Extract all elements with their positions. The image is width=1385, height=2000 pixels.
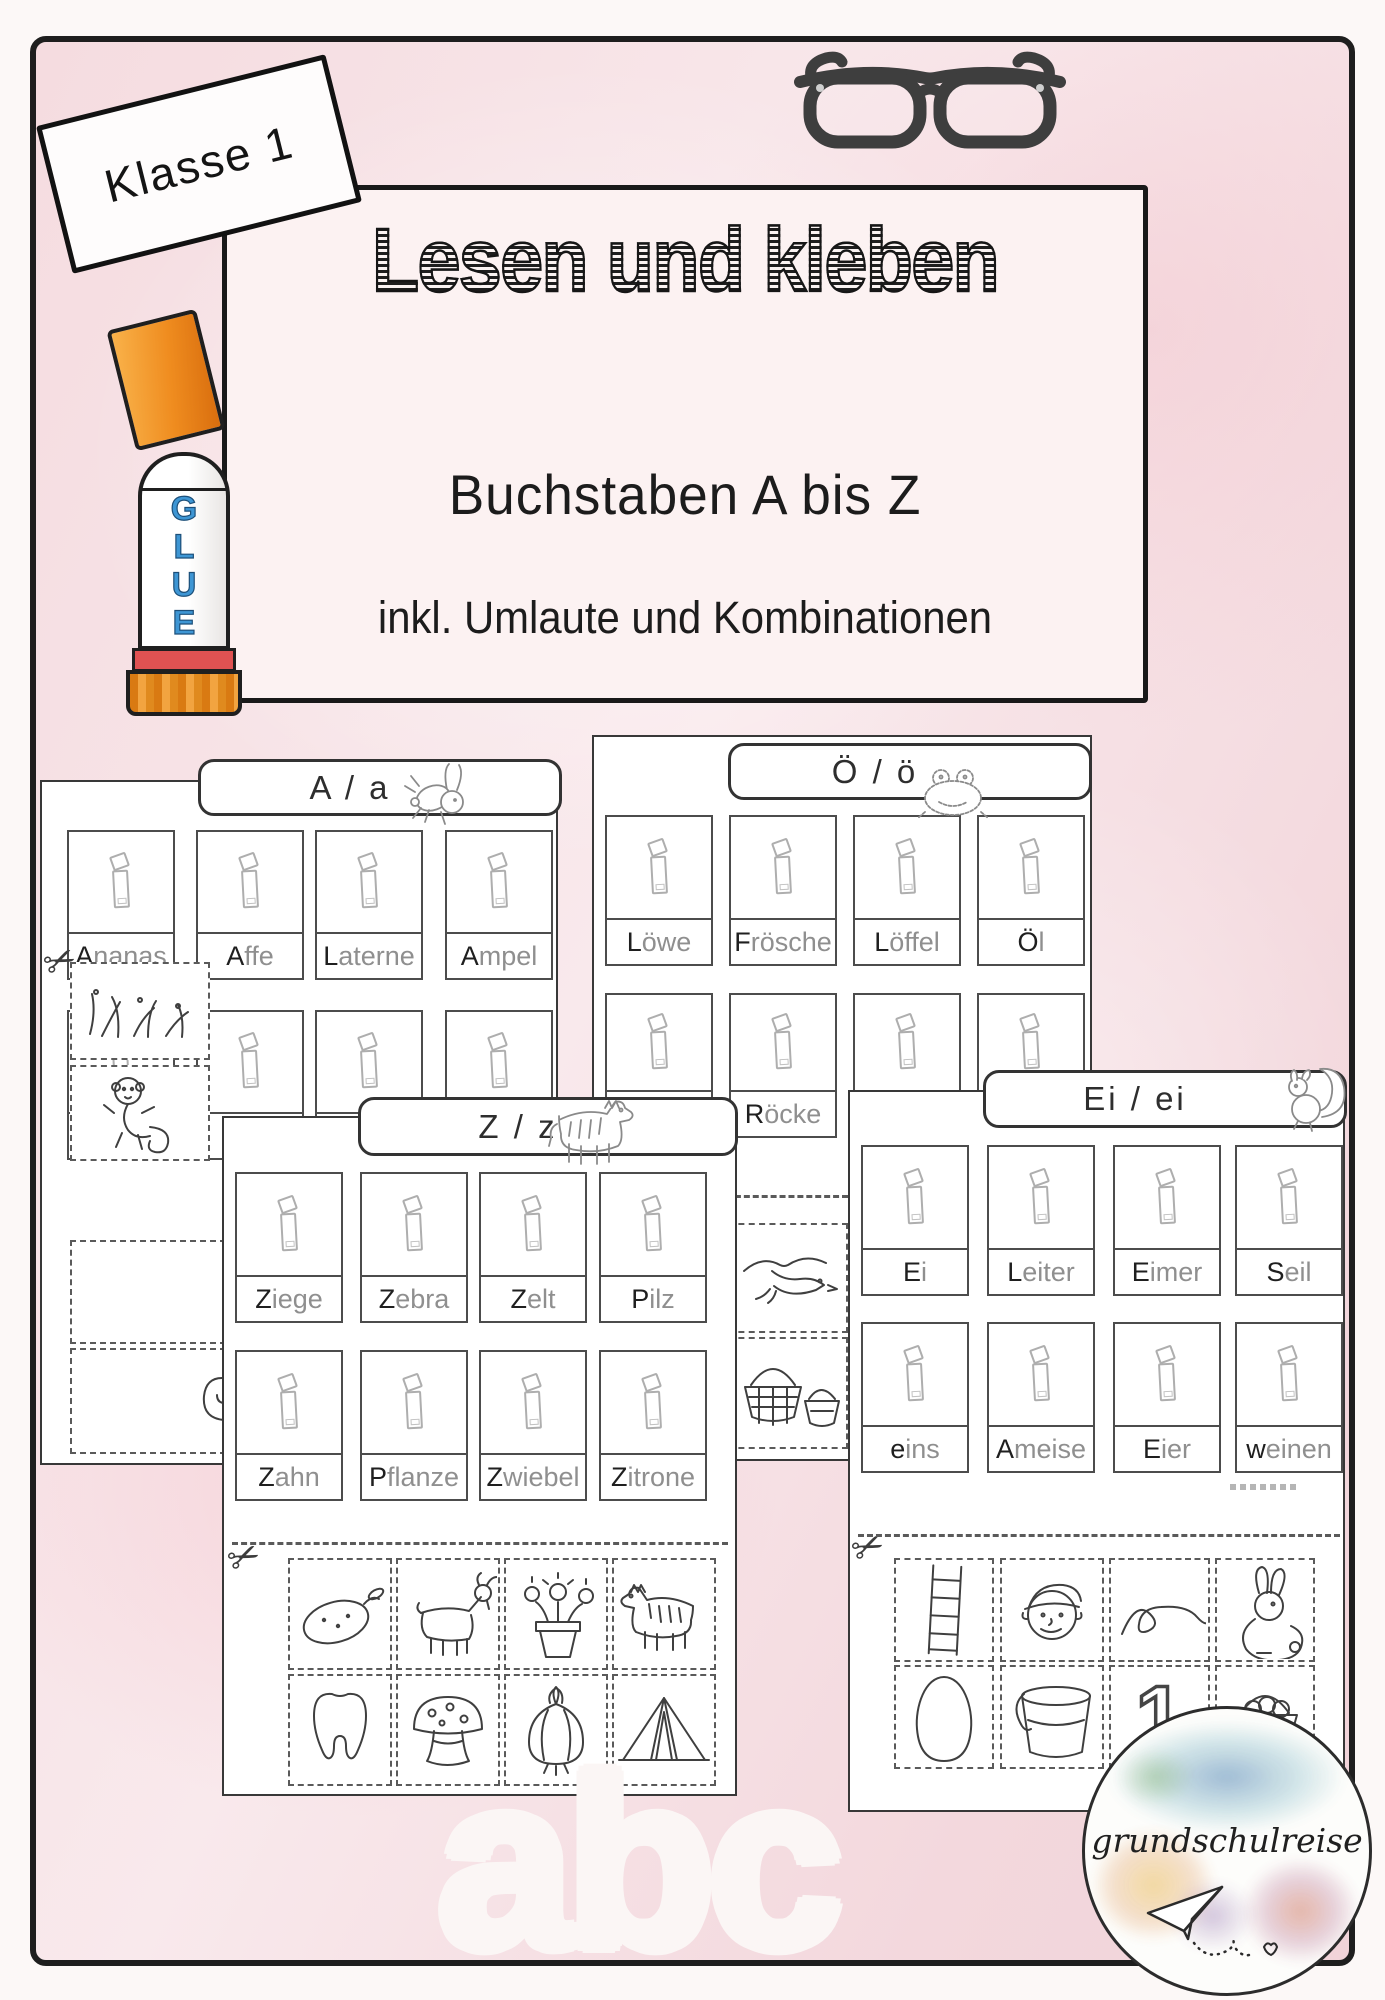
word-label: eins: [861, 1425, 969, 1473]
abc-letters: abc: [438, 1742, 837, 1984]
glue-spot-icon: [518, 1197, 548, 1253]
glue-spot-icon: [900, 1170, 930, 1226]
cutout-bird: [728, 1223, 848, 1333]
word-label: Löwe: [605, 918, 713, 966]
word-label: Ampel: [445, 932, 553, 980]
word-label: Eimer: [1113, 1248, 1221, 1296]
paper-plane-icon: [1136, 1879, 1286, 1965]
worksheet-a-title: A / a: [309, 769, 390, 807]
glue-spot-icon: [638, 1375, 668, 1431]
cell-picture: [1113, 1322, 1221, 1427]
worksheet-z-header: Z / z: [358, 1097, 738, 1156]
cell-picture: [360, 1350, 468, 1455]
cell-picture: [861, 1322, 969, 1427]
cut-line: [726, 1195, 848, 1198]
glue-spot-icon: [518, 1375, 548, 1431]
word-label: Laterne: [315, 932, 423, 980]
cutout-lemon: [288, 1558, 392, 1670]
cell-picture: [235, 1172, 343, 1277]
glue-spot-icon: [484, 854, 514, 910]
glue-spot-icon: [1026, 1347, 1056, 1403]
glue-spot-icon: [354, 1034, 384, 1090]
watercolor-blob: [1119, 1749, 1193, 1806]
scissors-icon: ✂: [846, 1523, 891, 1571]
word-label: Ameise: [987, 1425, 1095, 1473]
worksheet-o-header: Ö / ö: [728, 743, 1092, 800]
glue-spot-icon: [900, 1347, 930, 1403]
cell-picture: [987, 1322, 1095, 1427]
word-label: Pilz: [599, 1275, 707, 1323]
monkey-icon: [94, 1069, 186, 1157]
glue-stick-stripe: [132, 648, 236, 672]
cutout-rabbit: [1215, 1558, 1315, 1662]
cut-line: [858, 1534, 1340, 1537]
scissors-icon: ✂: [222, 1533, 267, 1581]
squirrel-icon: [1278, 1055, 1356, 1139]
cell-picture: [1235, 1145, 1343, 1250]
cutout-monkey: [70, 1065, 210, 1161]
worksheet-ei-title: Ei / ei: [1083, 1080, 1187, 1118]
worksheet-a-header: A / a: [198, 759, 562, 816]
glue-spot-icon: [106, 854, 136, 910]
subtitle-letters: Buchstaben A bis Z: [250, 462, 1120, 527]
glue-spot-icon: [1274, 1170, 1304, 1226]
word-label: Pflanze: [360, 1453, 468, 1501]
word-label: Zwiebel: [479, 1453, 587, 1501]
cutout-rope: [1109, 1558, 1210, 1662]
glue-spot-icon: [638, 1197, 668, 1253]
glue-letter: U: [172, 566, 197, 604]
glue-stick-base: [126, 670, 242, 716]
cell-picture: [861, 1145, 969, 1250]
goat-icon: [399, 1571, 497, 1657]
bird-icon: [736, 1245, 840, 1311]
tooth-icon: [300, 1684, 380, 1776]
man-icon: [1005, 1563, 1099, 1657]
main-title: Lesen und kleben: [291, 210, 1079, 313]
word-label: Leiter: [987, 1248, 1095, 1296]
glue-spot-icon: [274, 1197, 304, 1253]
cell-picture: [479, 1350, 587, 1455]
word-label: weinen: [1235, 1425, 1343, 1473]
cutout-bucket: [1000, 1665, 1104, 1769]
rope-icon: [1114, 1572, 1206, 1648]
rabbit-icon: [1221, 1561, 1309, 1659]
cell-picture: [1113, 1145, 1221, 1250]
cell-picture: [196, 830, 304, 934]
glue-spot-icon: [644, 1015, 674, 1071]
grade-badge-label: Klasse 1: [99, 115, 299, 214]
cell-picture: [479, 1172, 587, 1277]
glasses-icon: [790, 36, 1070, 164]
word-label: Zelt: [479, 1275, 587, 1323]
cell-picture: [315, 830, 423, 934]
word-label: Zitrone: [599, 1453, 707, 1501]
cutout-egg: [894, 1665, 994, 1769]
cell-picture: [360, 1172, 468, 1277]
zebra-strip-icon: [615, 1570, 713, 1658]
cutout-zebra: [612, 1558, 716, 1670]
frog-icon: [913, 762, 995, 822]
worksheet-ei: Ei / ei Ei Leiter Eimer Seil eins Ameise…: [848, 1090, 1345, 1812]
word-label: Seil: [1235, 1248, 1343, 1296]
glue-spot-icon: [644, 840, 674, 896]
cutout-flower-pot: [504, 1558, 608, 1670]
word-label: Affe: [196, 932, 304, 980]
subtitle-umlaute: inkl. Umlaute und Kombinationen: [259, 592, 1111, 644]
ladder-icon: [909, 1560, 980, 1659]
cell-picture: [445, 830, 553, 934]
product-cover: { "badge": {"label": "Klasse 1"}, "title…: [0, 0, 1385, 2000]
glue-spot-icon: [1152, 1170, 1182, 1226]
copyright-squiggle: [1230, 1484, 1296, 1490]
glue-spot-icon: [354, 854, 384, 910]
glue-spot-icon: [1152, 1347, 1182, 1403]
cutout-tooth: [288, 1674, 392, 1786]
glue-spot-icon: [399, 1197, 429, 1253]
cell-picture: [987, 1145, 1095, 1250]
cell-picture: [235, 1350, 343, 1455]
glue-spot-icon: [274, 1375, 304, 1431]
brand-logo: grundschulreise: [1082, 1706, 1372, 1996]
glue-spot-icon: [892, 1015, 922, 1071]
cell-picture: [599, 1172, 707, 1277]
worksheet-z: Z / z Ziege Zebra Zelt Pilz Zahn Pflanze…: [222, 1116, 737, 1796]
egg-icon: [906, 1669, 982, 1765]
cutout-box: [70, 1240, 246, 1344]
worksheet-ei-header: Ei / ei: [983, 1070, 1347, 1128]
word-label: Eier: [1113, 1425, 1221, 1473]
cell-picture: [67, 830, 175, 934]
cutout-baskets: [728, 1337, 848, 1449]
word-label: Ziege: [235, 1275, 343, 1323]
brand-name: grundschulreise: [1085, 1821, 1369, 1860]
title-box: Lesen und kleben Buchstaben A bis Z inkl…: [222, 185, 1148, 703]
glue-spot-icon: [1016, 1015, 1046, 1071]
glue-spot-icon: [235, 1034, 265, 1090]
cell-picture: [729, 815, 837, 920]
basket-icon: [735, 1347, 841, 1439]
cell-picture: [729, 993, 837, 1092]
lemon-icon: [292, 1574, 388, 1654]
cutout-box: [70, 1348, 246, 1454]
glue-spot-icon: [892, 840, 922, 896]
grass-icon: [82, 980, 198, 1042]
glue-spot-icon: [235, 854, 265, 910]
cutout-goat: [396, 1558, 500, 1670]
word-label: Ei: [861, 1248, 969, 1296]
glue-spot-icon: [1026, 1170, 1056, 1226]
cutout-man: [1000, 1558, 1104, 1662]
glue-letter: G: [171, 490, 197, 528]
glue-spot-icon: [768, 840, 798, 896]
glue-spot-icon: [1274, 1347, 1304, 1403]
word-label: Röcke: [729, 1090, 837, 1138]
worksheet-o-title: Ö / ö: [832, 753, 919, 791]
glue-spot-icon: [1016, 840, 1046, 896]
cell-picture: [605, 815, 713, 920]
cell-picture: [196, 1010, 304, 1114]
glue-spot-icon: [399, 1375, 429, 1431]
glue-stick-body: G L U E: [138, 452, 230, 650]
cell-picture: [1235, 1322, 1343, 1427]
word-label: Löffel: [853, 918, 961, 966]
glue-letter: E: [173, 604, 196, 642]
glue-spot-icon: [768, 1015, 798, 1071]
cell-picture: [853, 993, 961, 1092]
cut-line: [232, 1542, 728, 1545]
cutout-grass: [70, 962, 210, 1060]
glue-spot-icon: [484, 1034, 514, 1090]
word-label: Zebra: [360, 1275, 468, 1323]
cell-picture: [605, 993, 713, 1092]
word-label: Öl: [977, 918, 1085, 966]
cutout-ladder: [894, 1558, 994, 1662]
flower-pot-icon: [510, 1566, 602, 1662]
bunny-icon: [401, 750, 473, 836]
cell-picture: [599, 1350, 707, 1455]
cell-picture: [977, 815, 1085, 920]
cell-picture: [853, 815, 961, 920]
word-label: Frösche: [729, 918, 837, 966]
zebra-icon: [541, 1084, 649, 1176]
bucket-icon: [1004, 1670, 1100, 1764]
word-label: Zahn: [235, 1453, 343, 1501]
glue-letter: L: [174, 528, 195, 566]
